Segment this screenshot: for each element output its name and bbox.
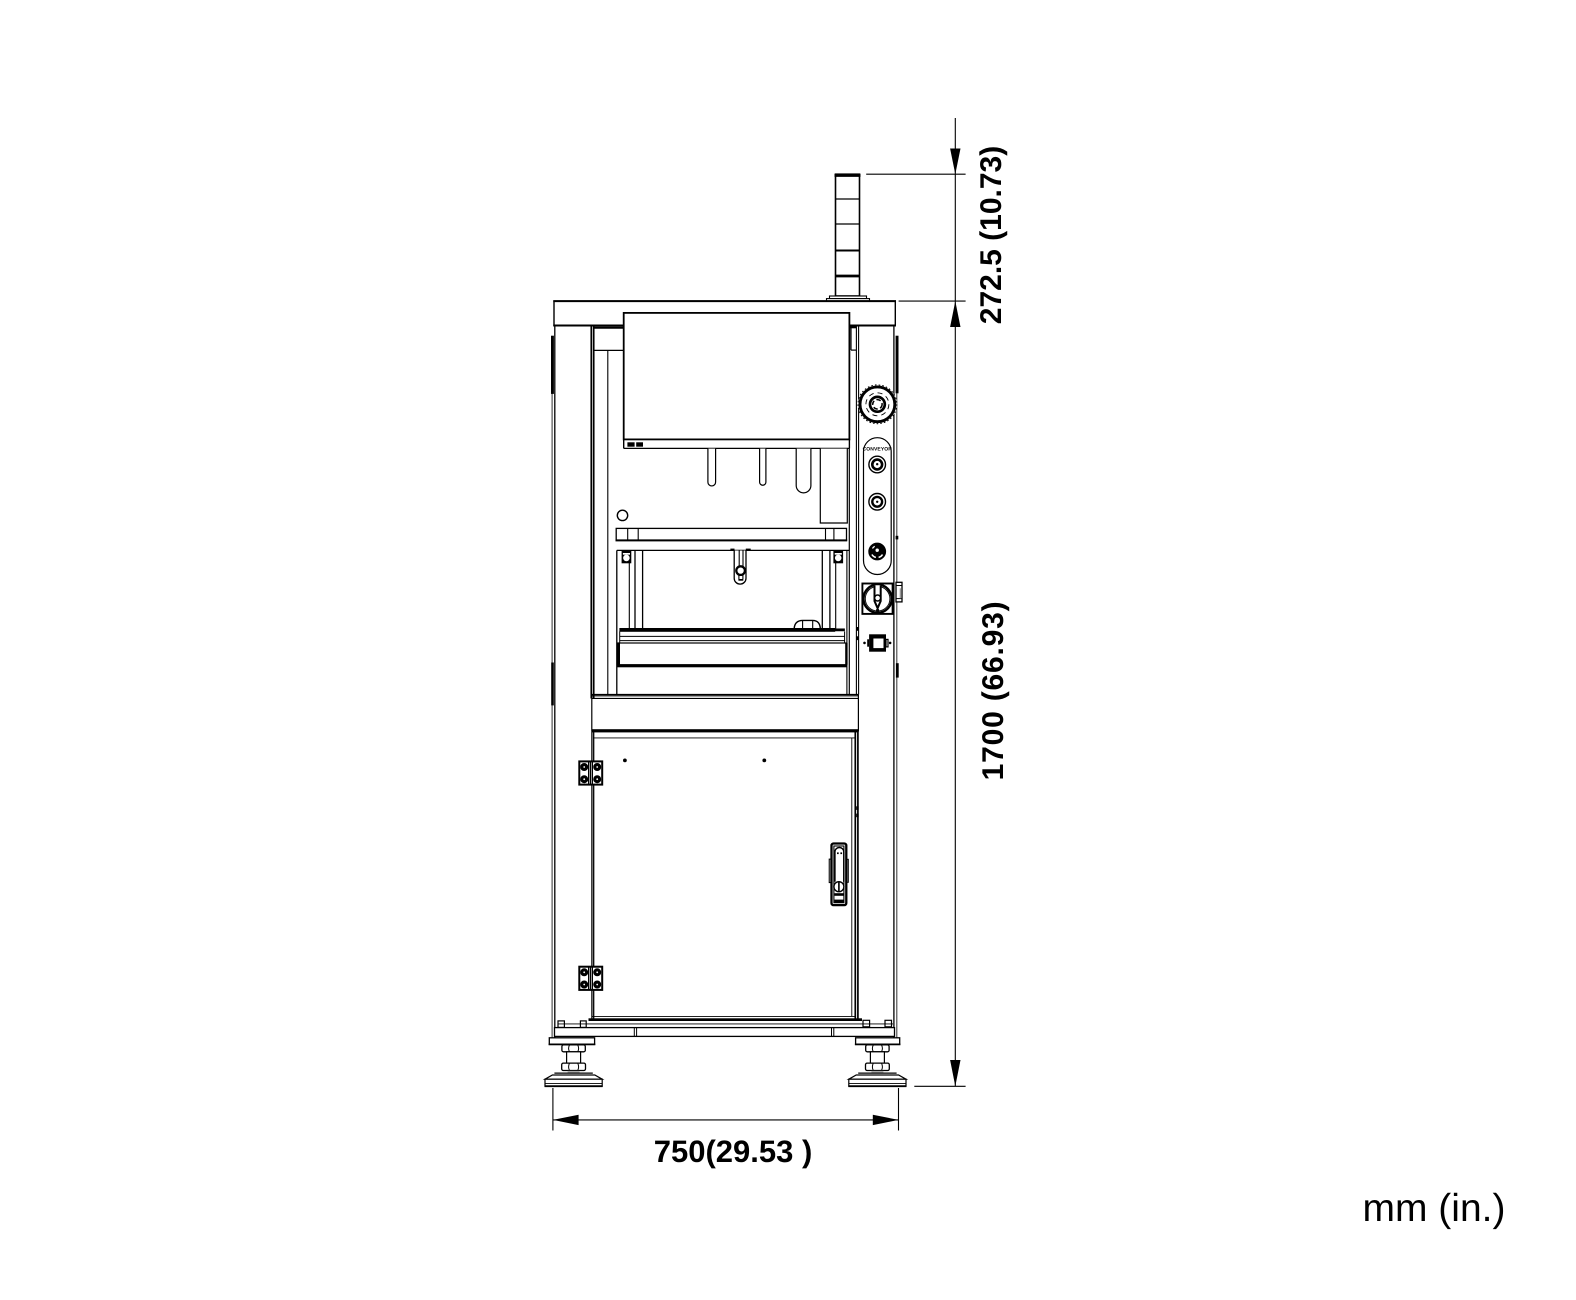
svg-text:272.5 (10.73): 272.5 (10.73) (975, 146, 1008, 324)
svg-text:CONVEYOR: CONVEYOR (863, 446, 893, 452)
svg-text:mm (in.): mm (in.) (1363, 1187, 1506, 1230)
svg-text:750(29.53 ): 750(29.53 ) (654, 1134, 813, 1169)
svg-text:1700 (66.93): 1700 (66.93) (977, 601, 1010, 781)
